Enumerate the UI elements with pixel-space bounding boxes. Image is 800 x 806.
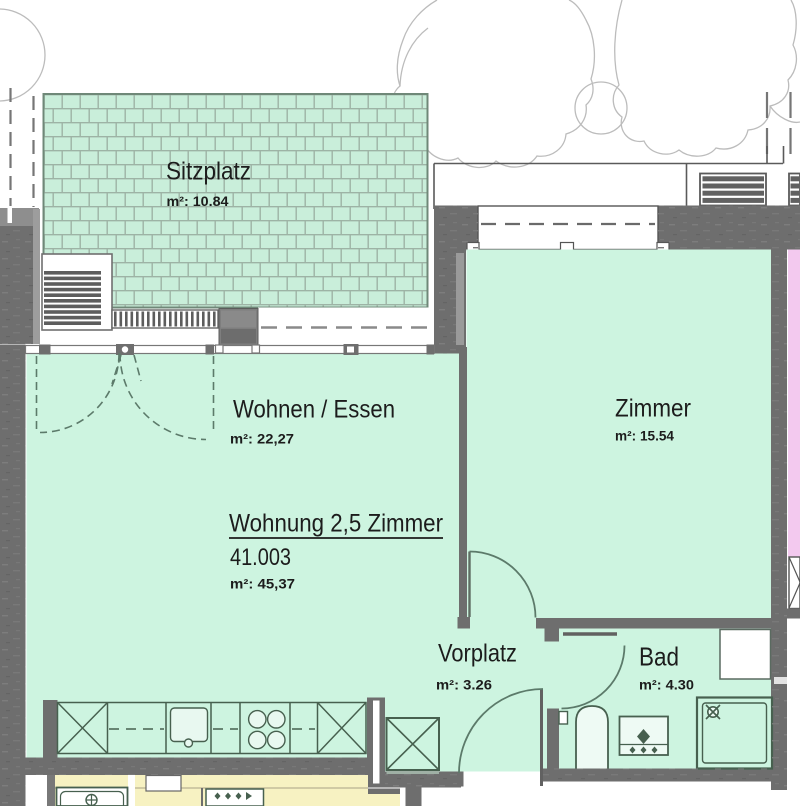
- svg-text:m²: 10.84: m²: 10.84: [167, 193, 229, 209]
- svg-text:m²: 22,27: m²: 22,27: [230, 431, 294, 447]
- svg-text:Wohnen / Essen: Wohnen / Essen: [233, 396, 395, 424]
- svg-text:m²: 15.54: m²: 15.54: [615, 428, 674, 444]
- svg-text:Zimmer: Zimmer: [615, 395, 691, 423]
- svg-text:Wohnung 2,5 Zimmer: Wohnung 2,5 Zimmer: [229, 510, 443, 538]
- svg-text:m²: 3.26: m²: 3.26: [436, 677, 492, 693]
- svg-text:Sitzplatz: Sitzplatz: [166, 158, 251, 186]
- svg-text:Bad: Bad: [639, 642, 679, 672]
- svg-text:m²: 45,37: m²: 45,37: [230, 576, 295, 592]
- svg-text:Vorplatz: Vorplatz: [438, 640, 517, 668]
- svg-text:41.003: 41.003: [230, 544, 291, 571]
- svg-text:m²: 4.30: m²: 4.30: [639, 677, 694, 693]
